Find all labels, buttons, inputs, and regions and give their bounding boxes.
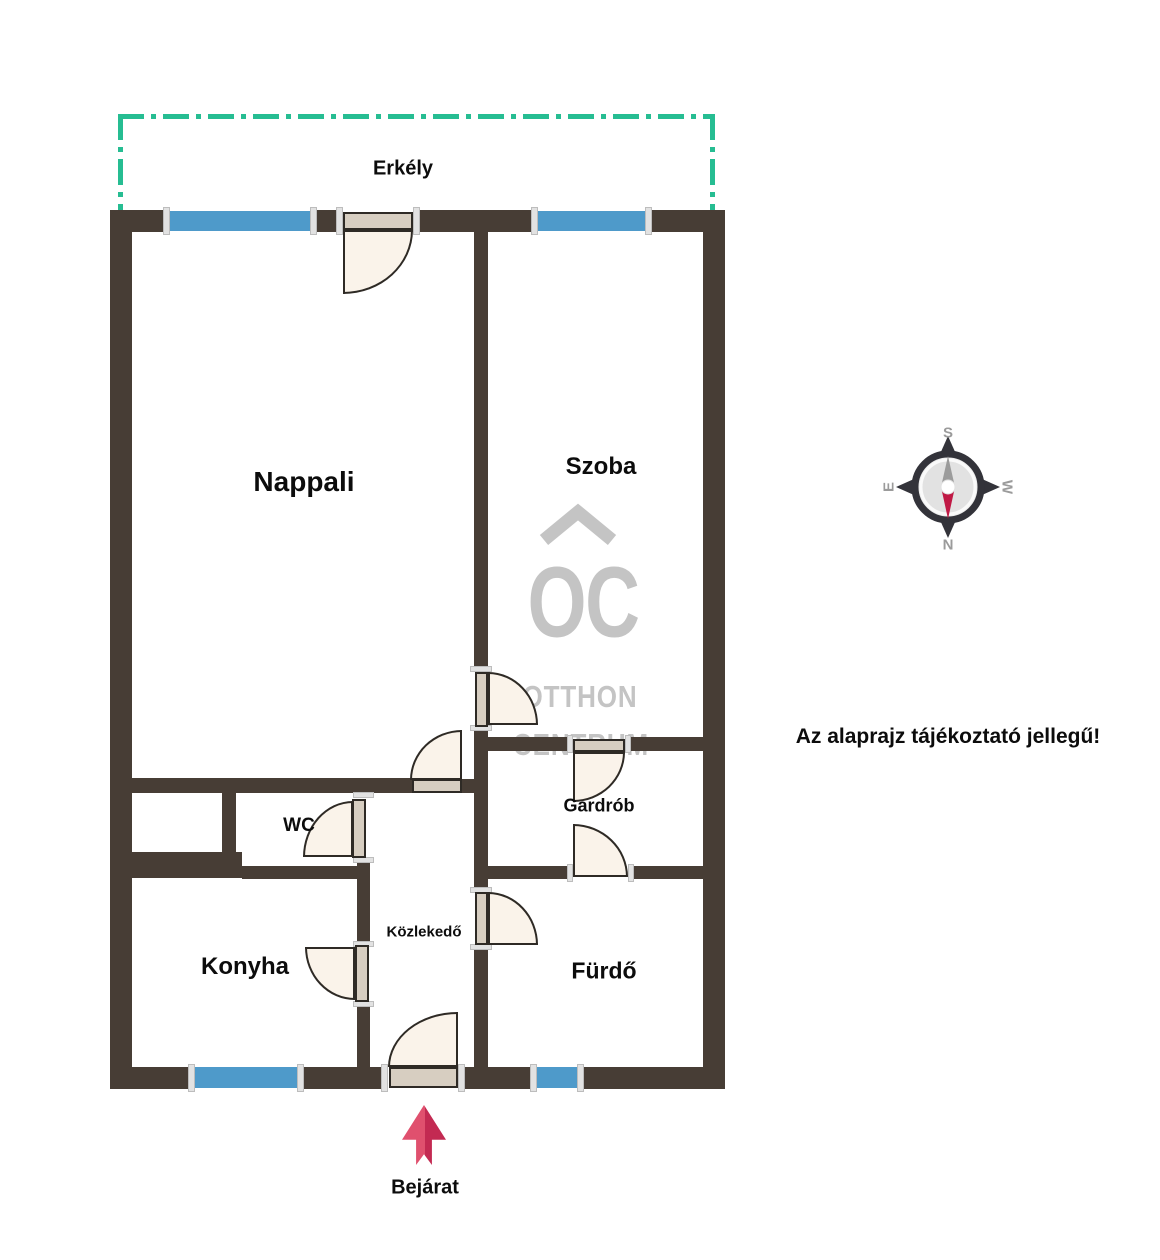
balcony-outline-left [118, 114, 123, 211]
compass-letter-w: W [999, 480, 1016, 494]
otthon-centrum-chevron-icon [536, 502, 620, 546]
door-swing-balcony [343, 230, 413, 294]
wall [488, 866, 573, 879]
jamb [353, 792, 374, 798]
window [195, 1067, 297, 1088]
wall [110, 210, 132, 1089]
jamb [413, 207, 420, 235]
jamb [163, 207, 170, 235]
wall [297, 1067, 388, 1089]
door-swing-entrance [388, 1012, 458, 1067]
wall [577, 1067, 725, 1089]
wall [110, 852, 242, 878]
door-leaf-nappali-hall [412, 779, 462, 793]
room-label-kozlekedo: Közlekedő [386, 924, 461, 941]
compass-letter-s: S [943, 425, 953, 442]
wall [458, 1067, 537, 1089]
room-label-furdo: Fürdő [571, 958, 636, 985]
jamb [577, 1064, 584, 1092]
door-leaf-gardrob [573, 739, 625, 752]
door-leaf-szoba [475, 672, 488, 727]
window [538, 211, 645, 231]
door-leaf-balcony [343, 212, 413, 230]
watermark-monogram: OC [528, 546, 639, 661]
jamb [188, 1064, 195, 1092]
wall [357, 1002, 370, 1067]
room-label-nappali: Nappali [253, 466, 354, 498]
compass-letter-n: N [943, 537, 954, 554]
jamb [310, 207, 317, 235]
balcony-outline-right [710, 114, 715, 211]
wall [462, 779, 474, 793]
jamb [336, 207, 343, 235]
wall [703, 210, 725, 1089]
wall [488, 737, 573, 751]
wall [413, 210, 538, 232]
window [537, 1067, 577, 1088]
balcony-outline-top [118, 114, 715, 119]
window [170, 211, 310, 231]
jamb [628, 864, 634, 882]
compass-rose: S N E W [878, 412, 1018, 562]
entrance-label: Bejárat [391, 1177, 459, 1200]
wall [242, 866, 370, 879]
door-swing-hall-furdo [488, 892, 538, 945]
door-leaf-hall-furdo [475, 892, 488, 945]
jamb [381, 1064, 388, 1092]
wall [222, 792, 236, 858]
door-leaf-wc [352, 799, 366, 858]
watermark-line1: OTTHON [523, 679, 638, 715]
floorplan-canvas: Erkély OC OTTHON CENTRUM [0, 0, 1160, 1260]
wall [474, 727, 488, 892]
door-swing-konyha [305, 947, 355, 1000]
jamb [458, 1064, 465, 1092]
disclaimer-text: Az alaprajz tájékoztató jellegű! [796, 725, 1101, 749]
door-swing-gardrob [573, 752, 625, 802]
wall [625, 737, 703, 751]
door-leaf-entrance [389, 1067, 458, 1088]
wall [474, 945, 488, 1067]
jamb [645, 207, 652, 235]
door-swing-gardrob-furdo [573, 824, 628, 877]
jamb [297, 1064, 304, 1092]
wall [474, 232, 488, 672]
room-label-wc: WC [283, 815, 315, 837]
jamb [625, 735, 631, 753]
room-label-erkely: Erkély [373, 158, 433, 181]
wall [357, 858, 370, 947]
room-label-gardrob: Gardrób [563, 796, 634, 817]
room-label-szoba: Szoba [566, 453, 637, 481]
door-leaf-konyha [355, 945, 369, 1002]
room-label-konyha: Konyha [201, 953, 289, 981]
entrance-arrow-icon [402, 1105, 446, 1165]
jamb [530, 1064, 537, 1092]
wall [110, 1067, 195, 1089]
compass-letter-e: E [881, 482, 898, 492]
jamb [531, 207, 538, 235]
wall [628, 866, 703, 879]
door-swing-nappali-hall [410, 730, 462, 780]
